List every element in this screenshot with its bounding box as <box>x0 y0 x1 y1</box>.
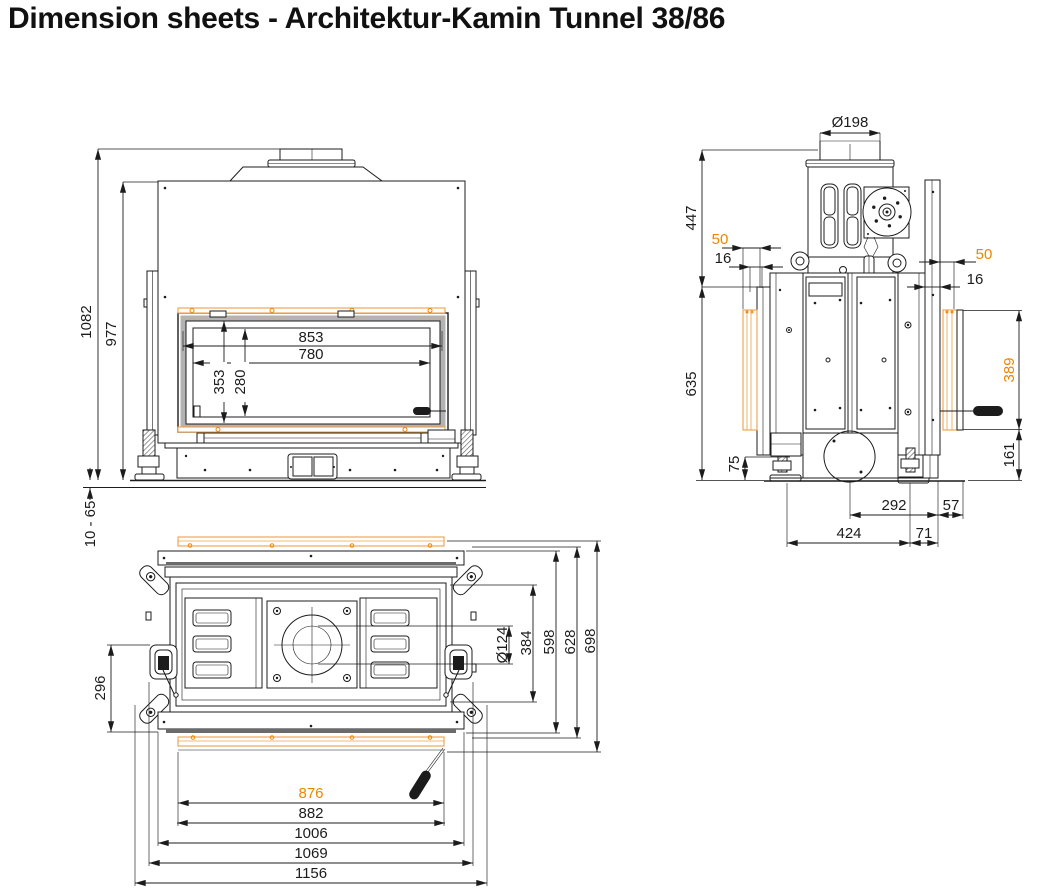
side-view: Ø198 447 635 50 16 <box>683 114 1022 547</box>
dim-front-opening-height: 353 <box>211 369 228 394</box>
top-trim-back <box>178 737 444 746</box>
top-art <box>137 537 484 801</box>
dim-front-opening-width: 853 <box>298 329 323 346</box>
top-handle <box>407 769 432 801</box>
top-flue-plate <box>267 601 357 688</box>
dim-top-flue-hole: Ø124 <box>494 627 511 664</box>
door-handle <box>413 407 431 415</box>
dim-top-body-depth: 598 <box>541 629 558 654</box>
dim-top-inner-depth: 384 <box>518 630 535 655</box>
dim-top-latch-width: 1069 <box>294 845 327 862</box>
dim-side-depth-center-back: 292 <box>881 497 906 514</box>
dim-top-outer-depth: 628 <box>562 629 579 654</box>
top-trim-front <box>178 537 444 546</box>
dim-side-left-offset-inner: 16 <box>715 250 732 267</box>
dim-top-latch-depth: 296 <box>92 675 109 700</box>
dim-side-right-offset-outer: 50 <box>976 246 993 263</box>
dim-side-left-offset-outer: 50 <box>712 231 729 248</box>
dim-side-body-height: 635 <box>683 371 700 396</box>
top-vent-right <box>360 598 437 688</box>
top-handle-group <box>407 748 445 801</box>
dimension-sheet-page: Dimension sheets - Architektur-Kamin Tun… <box>0 0 1040 890</box>
front-base <box>165 430 458 479</box>
side-flue <box>806 141 894 167</box>
side-pulley <box>863 187 911 238</box>
dim-side-flue-diameter: Ø198 <box>832 114 869 131</box>
front-flue <box>268 149 355 167</box>
dim-top-frame-width: 882 <box>298 805 323 822</box>
side-trim-right <box>943 310 957 430</box>
front-art <box>83 149 486 488</box>
side-center-body <box>803 273 898 433</box>
dim-front-glass-width: 780 <box>298 346 323 363</box>
dim-side-depth-back-offset: 57 <box>943 497 960 514</box>
dim-side-upper-height: 447 <box>683 205 700 230</box>
side-trim-left <box>743 310 757 430</box>
side-art <box>743 141 1003 483</box>
dimension-drawing: 1082 977 10 - 65 853 780 353 280 <box>0 0 1040 890</box>
top-vent-left <box>185 598 262 688</box>
dim-front-body-height: 977 <box>103 321 120 346</box>
dim-side-right-offset-inner: 16 <box>967 271 984 288</box>
dim-side-depth-feet: 424 <box>836 525 861 542</box>
dim-side-frame-bottom: 161 <box>1001 442 1018 467</box>
dim-front-glass-height: 280 <box>232 369 249 394</box>
dim-side-foot-height: 75 <box>726 456 743 473</box>
dim-top-total-width: 1156 <box>295 865 327 882</box>
dim-side-frame-profile: 389 <box>1001 357 1018 382</box>
top-view: 296 Ø124 384 598 628 698 <box>92 537 601 886</box>
dim-top-body-width: 1006 <box>294 825 327 842</box>
dim-top-total-depth: 698 <box>582 628 599 653</box>
dim-top-frame-inner-width: 876 <box>298 785 323 802</box>
dim-front-total-height: 1082 <box>78 305 95 338</box>
front-view: 1082 977 10 - 65 853 780 353 280 <box>78 149 486 547</box>
front-hood <box>230 167 382 181</box>
side-handle <box>973 406 1003 416</box>
dim-side-depth-back-edge: 71 <box>916 525 933 542</box>
dim-front-foot-range: 10 - 65 <box>82 501 99 548</box>
